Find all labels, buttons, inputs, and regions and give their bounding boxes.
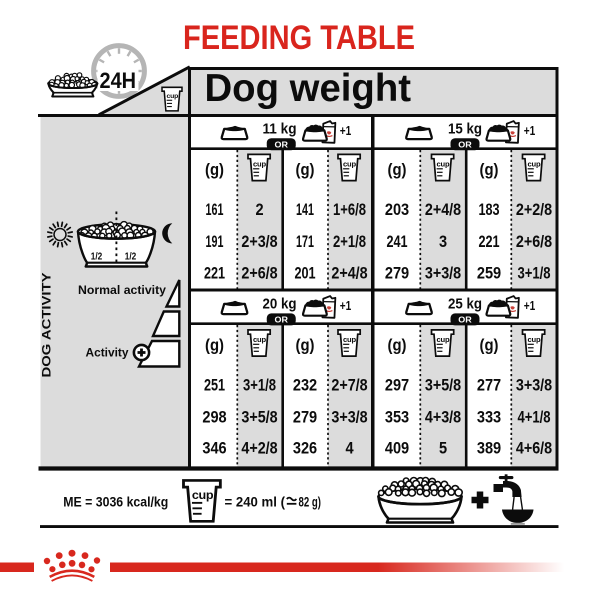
svg-text:353: 353 <box>385 408 409 426</box>
svg-text:221: 221 <box>478 233 499 251</box>
svg-text:389: 389 <box>477 439 501 457</box>
svg-text:2: 2 <box>255 201 263 219</box>
svg-text:(g): (g) <box>480 336 499 355</box>
svg-text:4+2/8: 4+2/8 <box>241 439 277 457</box>
svg-text:4+6/8: 4+6/8 <box>516 439 552 457</box>
svg-text:2+6/8: 2+6/8 <box>516 233 552 251</box>
svg-text:(g): (g) <box>296 336 315 355</box>
svg-text:297: 297 <box>385 376 409 394</box>
svg-text:251: 251 <box>204 376 225 394</box>
svg-text:24H: 24H <box>100 68 137 93</box>
svg-text:3+5/8: 3+5/8 <box>241 408 277 426</box>
svg-text:+1: +1 <box>340 298 352 313</box>
svg-text:(g): (g) <box>388 336 407 355</box>
svg-text:201: 201 <box>294 264 315 282</box>
svg-text:3+1/8: 3+1/8 <box>243 376 276 394</box>
svg-text:3+3/8: 3+3/8 <box>516 376 552 394</box>
svg-text:2+4/8: 2+4/8 <box>331 264 367 282</box>
svg-text:20 kg: 20 kg <box>263 296 297 313</box>
svg-text:171: 171 <box>296 233 314 251</box>
svg-text:(g): (g) <box>388 160 407 179</box>
svg-text:1+6/8: 1+6/8 <box>333 201 366 219</box>
svg-text:+1: +1 <box>524 298 536 313</box>
svg-text:191: 191 <box>206 233 224 251</box>
svg-text:4: 4 <box>345 439 353 457</box>
svg-text:Normal activity: Normal activity <box>78 284 167 297</box>
svg-text:1/2: 1/2 <box>91 251 103 263</box>
svg-text:4+1/8: 4+1/8 <box>517 408 550 426</box>
svg-text:2+6/8: 2+6/8 <box>241 264 277 282</box>
svg-text:2+4/8: 2+4/8 <box>425 201 461 219</box>
svg-text:259: 259 <box>477 264 501 282</box>
svg-text:(g): (g) <box>205 336 224 355</box>
svg-text:2+7/8: 2+7/8 <box>331 376 367 394</box>
svg-text:DOG ACTIVITY: DOG ACTIVITY <box>40 273 54 378</box>
svg-text:232: 232 <box>293 376 317 394</box>
svg-text:4+3/8: 4+3/8 <box>425 408 461 426</box>
svg-text:221: 221 <box>204 264 225 282</box>
svg-text:409: 409 <box>385 439 409 457</box>
svg-text:333: 333 <box>477 408 501 426</box>
svg-text:Activity: Activity <box>86 346 130 359</box>
svg-text:(g): (g) <box>205 160 224 179</box>
svg-text:3+3/8: 3+3/8 <box>331 408 367 426</box>
svg-text:2+3/8: 2+3/8 <box>241 233 277 251</box>
svg-text:3+3/8: 3+3/8 <box>425 264 461 282</box>
svg-text:25 kg: 25 kg <box>448 296 482 313</box>
svg-text:15 kg: 15 kg <box>448 121 482 138</box>
svg-text:Dog weight: Dog weight <box>205 67 412 110</box>
svg-text:346: 346 <box>202 439 226 457</box>
svg-text:= 240 ml (: = 240 ml ( <box>225 494 286 509</box>
svg-text:298: 298 <box>202 408 226 426</box>
svg-text:+1: +1 <box>340 123 352 138</box>
svg-text:5: 5 <box>439 439 447 457</box>
svg-text:(g): (g) <box>296 160 315 179</box>
svg-text:(g): (g) <box>480 160 499 179</box>
svg-text:161: 161 <box>206 201 224 219</box>
svg-text:ME = 3036 kcal/kg: ME = 3036 kcal/kg <box>63 494 168 509</box>
svg-text:183: 183 <box>478 201 499 219</box>
svg-text:3: 3 <box>439 233 447 251</box>
svg-text:277: 277 <box>477 376 501 394</box>
svg-text:2+1/8: 2+1/8 <box>333 233 366 251</box>
svg-text:FEEDING TABLE: FEEDING TABLE <box>183 19 415 57</box>
svg-text:203: 203 <box>385 201 409 219</box>
svg-text:241: 241 <box>386 233 407 251</box>
svg-text:3+5/8: 3+5/8 <box>425 376 461 394</box>
svg-text:+1: +1 <box>524 123 536 138</box>
svg-text:279: 279 <box>293 408 317 426</box>
svg-text:326: 326 <box>293 439 317 457</box>
svg-text:11 kg: 11 kg <box>263 121 297 138</box>
svg-text:141: 141 <box>296 201 314 219</box>
svg-text:279: 279 <box>385 264 409 282</box>
svg-text:1/2: 1/2 <box>125 251 137 263</box>
svg-text:2+2/8: 2+2/8 <box>516 201 552 219</box>
svg-text:82 g): 82 g) <box>299 494 322 509</box>
svg-text:3+1/8: 3+1/8 <box>517 264 550 282</box>
